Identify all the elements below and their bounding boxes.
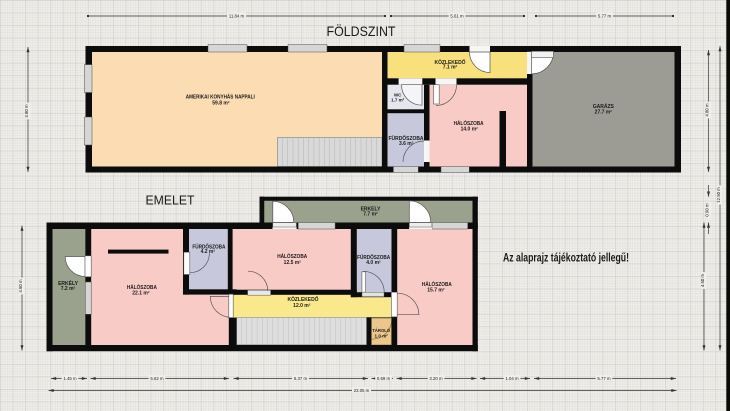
svg-text:12.5 m²: 12.5 m² bbox=[284, 260, 302, 266]
svg-text:AMERIKAI KONYHÁS NAPPALI: AMERIKAI KONYHÁS NAPPALI bbox=[186, 93, 256, 100]
svg-text:4.60 m: 4.60 m bbox=[700, 274, 705, 288]
svg-text:0.90 m: 0.90 m bbox=[705, 203, 710, 217]
svg-text:4.80 m: 4.80 m bbox=[24, 104, 29, 118]
svg-text:7.7 m²: 7.7 m² bbox=[363, 212, 378, 218]
svg-text:TÁROLÓ: TÁROLÓ bbox=[372, 326, 390, 333]
svg-text:23.05 m: 23.05 m bbox=[354, 388, 370, 393]
svg-text:KÖZLEKEDŐ: KÖZLEKEDŐ bbox=[288, 296, 319, 303]
svg-text:1.04 m: 1.04 m bbox=[505, 376, 519, 381]
svg-text:5.77 m: 5.77 m bbox=[597, 376, 611, 381]
svg-text:0.59 m: 0.59 m bbox=[377, 376, 391, 381]
svg-text:5.61 m: 5.61 m bbox=[450, 13, 464, 18]
svg-text:7.1 m²: 7.1 m² bbox=[443, 65, 458, 71]
svg-text:1.7 m²: 1.7 m² bbox=[391, 98, 405, 103]
svg-text:Az alaprajz tájékoztató jelleg: Az alaprajz tájékoztató jellegű! bbox=[503, 251, 629, 265]
svg-text:4.0 m²: 4.0 m² bbox=[366, 260, 381, 266]
svg-text:7.2 m²: 7.2 m² bbox=[61, 286, 76, 292]
svg-text:22.1 m²: 22.1 m² bbox=[132, 290, 150, 296]
svg-text:1.0 m²: 1.0 m² bbox=[375, 333, 389, 338]
svg-text:FÖLDSZINT: FÖLDSZINT bbox=[327, 22, 396, 39]
svg-text:12.0 m²: 12.0 m² bbox=[293, 303, 311, 309]
svg-text:15.7 m²: 15.7 m² bbox=[427, 288, 445, 294]
svg-text:4.80 m: 4.80 m bbox=[705, 103, 710, 117]
svg-text:4.2 m²: 4.2 m² bbox=[201, 249, 216, 255]
svg-text:5.62 m: 5.62 m bbox=[150, 376, 164, 381]
svg-text:11.84 m: 11.84 m bbox=[229, 13, 245, 18]
svg-text:4.60 m: 4.60 m bbox=[18, 279, 23, 293]
svg-text:14.0 m²: 14.0 m² bbox=[461, 127, 479, 133]
svg-text:12.50 m: 12.50 m bbox=[716, 187, 721, 203]
svg-text:EMELET: EMELET bbox=[146, 194, 195, 208]
svg-text:3.20 m: 3.20 m bbox=[429, 376, 443, 381]
svg-text:59.8 m²: 59.8 m² bbox=[212, 100, 230, 106]
svg-text:5.37 m: 5.37 m bbox=[294, 376, 308, 381]
svg-text:3.6 m²: 3.6 m² bbox=[399, 141, 414, 147]
svg-text:1.45 m: 1.45 m bbox=[63, 376, 77, 381]
svg-text:27.7 m²: 27.7 m² bbox=[595, 109, 613, 115]
svg-text:5.77 m: 5.77 m bbox=[598, 13, 612, 18]
